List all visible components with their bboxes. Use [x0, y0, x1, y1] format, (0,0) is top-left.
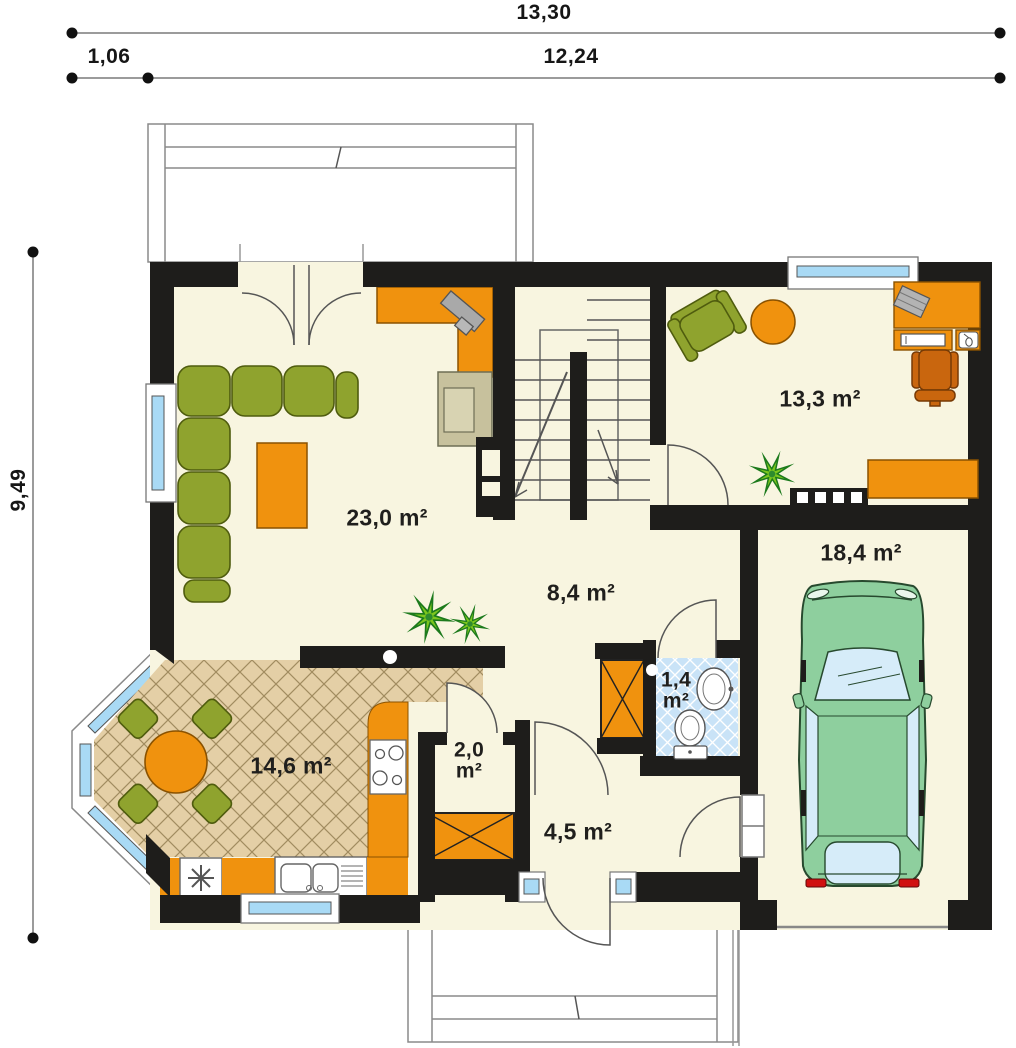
room-label-entry: 4,5 m² [544, 820, 612, 843]
floor-plan-drawing [0, 0, 1016, 1048]
round-pouf [751, 300, 795, 344]
room-label-kitchen: 14,6 m² [250, 754, 331, 777]
dim-width-main: 12,24 [543, 45, 598, 69]
car [792, 581, 932, 887]
side-window-right [907, 706, 919, 850]
pantry-wardrobe [427, 813, 514, 860]
living-room-window [146, 384, 176, 502]
room-label-hall: 8,4 m² [547, 581, 615, 604]
office-chair [912, 350, 958, 406]
dim-width-total: 13,30 [516, 1, 571, 25]
windshield [815, 648, 910, 700]
entry-sidelight-left [519, 872, 545, 902]
radiator [790, 488, 868, 507]
sideboard [868, 460, 978, 498]
room-label-pantry: 2,0 m² [454, 740, 484, 783]
dim-height-total: 9,49 [7, 469, 31, 512]
entry-sidelight-right [610, 872, 636, 902]
kitchen-sink [275, 857, 367, 899]
office-desk [894, 282, 980, 350]
room-label-living: 23,0 m² [346, 506, 427, 529]
coffee-table [257, 443, 307, 528]
floor-plan: 13,30 1,06 12,24 9,49 23,0 m² 13,3 m² 18… [0, 0, 1016, 1048]
taillight [806, 879, 826, 887]
kitchen-window [241, 894, 339, 923]
terrace [148, 124, 533, 262]
mouse-icon [966, 338, 972, 346]
stove-icon [370, 740, 406, 794]
keyboard-icon [901, 334, 945, 346]
room-label-office: 13,3 m² [779, 387, 860, 410]
toilet [674, 710, 707, 759]
side-window-left [806, 706, 818, 850]
rear-window [825, 842, 900, 884]
hall-wardrobe [601, 660, 644, 738]
room-label-garage: 18,4 m² [820, 541, 901, 564]
garage-door-leaf [742, 795, 764, 857]
taillight [899, 879, 919, 887]
dim-width-offset: 1,06 [88, 45, 131, 69]
room-label-wc: 1,4 m² [661, 670, 691, 713]
dining-table [145, 731, 207, 793]
